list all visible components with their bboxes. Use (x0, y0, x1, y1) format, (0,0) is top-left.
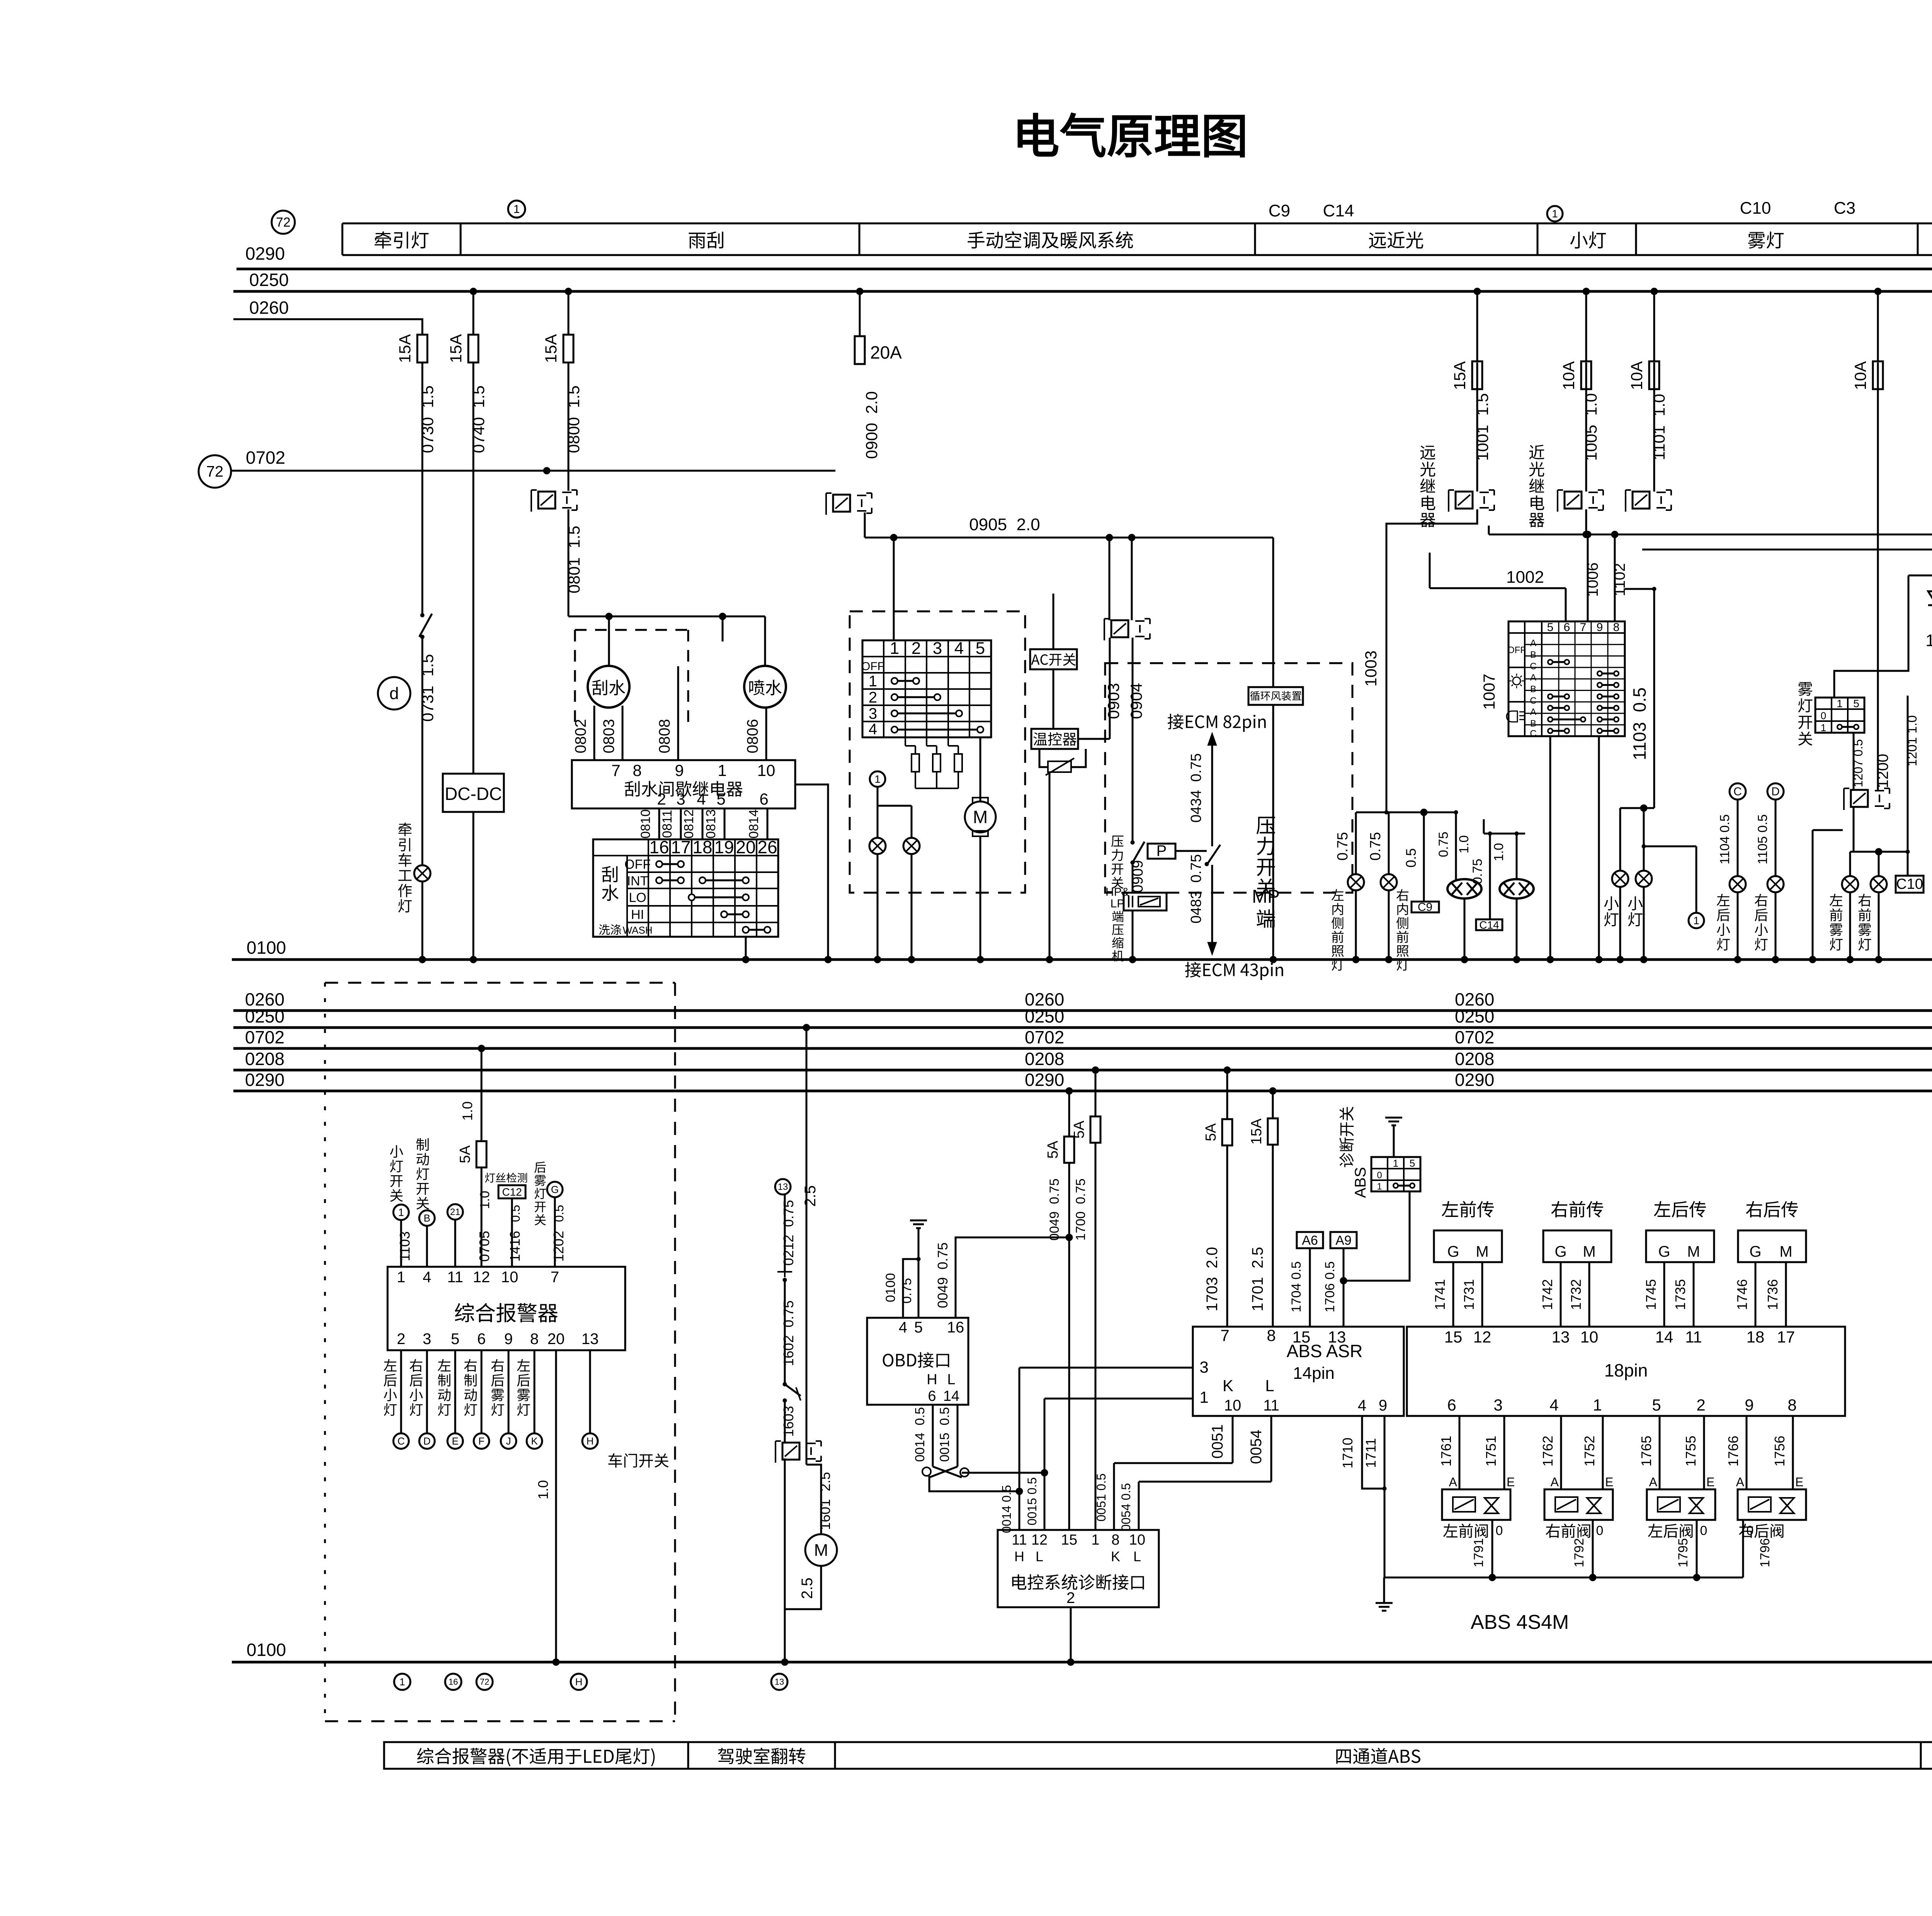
svg-text:1: 1 (1199, 1388, 1208, 1406)
svg-text:J: J (506, 1435, 511, 1447)
svg-text:0100: 0100 (247, 1640, 286, 1660)
svg-text:15A: 15A (447, 334, 465, 363)
svg-text:15A: 15A (396, 334, 414, 363)
svg-text:1765: 1765 (1638, 1436, 1654, 1467)
svg-text:2.5: 2.5 (802, 1185, 819, 1207)
svg-text:0051: 0051 (1209, 1424, 1226, 1459)
svg-text:5A: 5A (1203, 1123, 1219, 1141)
svg-text:1752: 1752 (1582, 1436, 1597, 1467)
svg-text:8: 8 (633, 761, 641, 779)
svg-text:10: 10 (501, 1269, 519, 1286)
svg-text:14: 14 (1655, 1328, 1673, 1346)
svg-text:9: 9 (504, 1331, 513, 1348)
svg-text:C: C (1733, 785, 1742, 798)
svg-text:20: 20 (548, 1331, 565, 1348)
svg-text:0: 0 (1496, 1523, 1503, 1538)
svg-text:11: 11 (1012, 1532, 1027, 1548)
svg-text:2: 2 (1066, 1589, 1075, 1606)
svg-text:4: 4 (697, 790, 706, 808)
svg-text:9: 9 (675, 761, 684, 779)
svg-text:1792: 1792 (1572, 1538, 1587, 1567)
svg-text:0290: 0290 (245, 243, 285, 264)
svg-text:12: 12 (473, 1269, 490, 1286)
svg-text:0909: 0909 (1130, 860, 1146, 893)
svg-text:10: 10 (1580, 1328, 1599, 1346)
svg-text:1751: 1751 (1483, 1436, 1499, 1467)
svg-text:M: M (1687, 1243, 1700, 1260)
svg-text:OFF: OFF (624, 857, 651, 872)
svg-text:0.5: 0.5 (509, 1205, 522, 1222)
svg-text:0208: 0208 (1455, 1049, 1494, 1069)
svg-text:8: 8 (1613, 621, 1620, 634)
svg-text:M: M (1779, 1243, 1792, 1260)
svg-text:3: 3 (676, 790, 685, 808)
svg-text:10A: 10A (1560, 361, 1578, 390)
svg-text:0049 0.75: 0049 0.75 (935, 1242, 951, 1308)
svg-text:1: 1 (1393, 1157, 1398, 1169)
svg-text:D: D (423, 1435, 431, 1447)
svg-text:14pin: 14pin (1293, 1364, 1335, 1383)
svg-text:OFF: OFF (1507, 645, 1526, 655)
svg-text:5: 5 (976, 639, 985, 658)
svg-text:1201 1.0: 1201 1.0 (1905, 715, 1920, 766)
svg-text:E: E (1605, 1475, 1613, 1489)
svg-text:13: 13 (582, 1331, 599, 1348)
svg-text:72: 72 (480, 1677, 489, 1687)
svg-text:1.0: 1.0 (1457, 835, 1471, 853)
svg-text:13: 13 (778, 1182, 788, 1192)
svg-text:1207 0.5: 1207 0.5 (1851, 739, 1865, 788)
svg-text:1711: 1711 (1363, 1438, 1379, 1468)
svg-text:1: 1 (1837, 698, 1843, 710)
svg-text:1603: 1603 (781, 1406, 796, 1437)
svg-text:C: C (1530, 661, 1536, 672)
svg-text:D: D (1771, 785, 1780, 798)
svg-text:ABS ASR: ABS ASR (1287, 1341, 1363, 1361)
svg-text:d: d (389, 684, 399, 703)
svg-text:1766: 1766 (1725, 1436, 1741, 1467)
svg-text:10: 10 (1224, 1397, 1242, 1414)
svg-text:0: 0 (1377, 1170, 1382, 1181)
svg-text:H: H (927, 1371, 937, 1388)
svg-text:0.5: 0.5 (1403, 848, 1419, 868)
svg-text:1005 1.0: 1005 1.0 (1582, 393, 1600, 461)
svg-text:5: 5 (716, 790, 725, 808)
svg-text:0.75: 0.75 (1335, 832, 1351, 861)
svg-text:1: 1 (718, 761, 726, 779)
svg-text:4: 4 (869, 721, 877, 738)
svg-text:1001 1.5: 1001 1.5 (1473, 393, 1492, 461)
svg-text:1: 1 (1693, 915, 1699, 927)
svg-text:A: A (1649, 1475, 1658, 1489)
svg-text:0702: 0702 (1025, 1027, 1064, 1047)
svg-text:1002: 1002 (1506, 568, 1544, 587)
svg-text:4: 4 (423, 1269, 431, 1286)
svg-text:0: 0 (1700, 1523, 1708, 1538)
svg-text:ABS 4S4M: ABS 4S4M (1471, 1611, 1569, 1634)
svg-text:18: 18 (1747, 1328, 1765, 1346)
svg-text:12: 12 (1031, 1532, 1048, 1548)
svg-text:C3: C3 (1834, 199, 1855, 218)
svg-text:72: 72 (276, 215, 291, 230)
svg-text:15: 15 (1061, 1532, 1077, 1548)
svg-text:2: 2 (657, 790, 666, 808)
svg-text:C: C (398, 1435, 405, 1447)
svg-text:2: 2 (397, 1331, 405, 1348)
svg-text:0.75: 0.75 (1436, 832, 1451, 857)
svg-text:M: M (1476, 1243, 1488, 1260)
svg-text:4: 4 (954, 639, 964, 658)
svg-text:0705: 0705 (476, 1231, 492, 1262)
svg-text:C9: C9 (1269, 201, 1290, 220)
svg-text:0100: 0100 (883, 1273, 898, 1302)
svg-text:14: 14 (943, 1388, 959, 1404)
svg-text:0: 0 (1821, 710, 1826, 721)
svg-text:0.5: 0.5 (552, 1205, 566, 1222)
svg-text:0.75: 0.75 (900, 1278, 914, 1303)
svg-text:1732: 1732 (1568, 1279, 1584, 1310)
svg-text:1601 2.5: 1601 2.5 (817, 1472, 833, 1530)
svg-text:0905 2.0: 0905 2.0 (969, 515, 1040, 534)
svg-text:LP: LP (1111, 897, 1125, 910)
svg-text:1: 1 (400, 1676, 405, 1688)
svg-text:1006: 1006 (1584, 563, 1601, 597)
svg-text:1: 1 (1552, 208, 1558, 220)
svg-text:0049 0.75: 0049 0.75 (1047, 1179, 1062, 1241)
svg-text:11: 11 (1263, 1397, 1279, 1414)
svg-text:1710: 1710 (1340, 1438, 1355, 1468)
svg-text:1756: 1756 (1772, 1436, 1787, 1467)
svg-text:2: 2 (869, 689, 877, 706)
svg-text:1.0: 1.0 (535, 1480, 551, 1499)
svg-text:L: L (1133, 1548, 1141, 1564)
svg-text:6: 6 (1447, 1396, 1456, 1414)
svg-text:18: 18 (692, 837, 712, 857)
svg-text:1: 1 (869, 673, 877, 690)
svg-text:5A: 5A (457, 1145, 473, 1163)
svg-text:7: 7 (1580, 621, 1587, 634)
svg-text:12: 12 (1473, 1328, 1492, 1346)
svg-text:9: 9 (1597, 621, 1603, 634)
svg-text:4: 4 (1358, 1397, 1366, 1414)
svg-text:C10: C10 (1896, 876, 1923, 892)
svg-text:E: E (1706, 1475, 1714, 1489)
svg-text:0015 0.5: 0015 0.5 (1025, 1477, 1039, 1526)
svg-text:1791: 1791 (1471, 1538, 1486, 1567)
svg-text:9: 9 (1379, 1397, 1387, 1414)
svg-text:72: 72 (206, 463, 224, 480)
svg-text:0290: 0290 (1455, 1070, 1494, 1090)
svg-text:K: K (531, 1435, 538, 1447)
svg-text:2.5: 2.5 (799, 1577, 816, 1599)
svg-text:G: G (1749, 1243, 1761, 1260)
svg-text:P: P (1156, 842, 1167, 859)
svg-text:1.0: 1.0 (1492, 843, 1506, 861)
svg-text:K: K (1111, 1548, 1120, 1564)
svg-text:C: C (1530, 696, 1536, 706)
svg-text:LO: LO (629, 890, 646, 905)
svg-text:B: B (423, 1212, 430, 1224)
svg-text:21: 21 (450, 1207, 461, 1217)
svg-text:0800 1.5: 0800 1.5 (565, 385, 583, 453)
svg-text:15: 15 (1444, 1328, 1463, 1346)
svg-text:1200: 1200 (1874, 754, 1891, 788)
svg-text:16: 16 (947, 1319, 964, 1336)
svg-text:DC-DC: DC-DC (445, 784, 502, 804)
svg-text:10: 10 (757, 761, 776, 779)
svg-text:1: 1 (874, 773, 881, 785)
svg-text:2: 2 (1696, 1396, 1705, 1414)
svg-text:1745: 1745 (1643, 1279, 1659, 1310)
svg-text:0803: 0803 (600, 719, 617, 754)
svg-text:0: 0 (1747, 1523, 1754, 1538)
svg-text:7: 7 (1220, 1326, 1229, 1344)
svg-text:6: 6 (928, 1388, 936, 1404)
svg-text:13: 13 (1552, 1328, 1570, 1346)
svg-text:0802: 0802 (572, 719, 589, 754)
svg-text:MP: MP (1252, 887, 1280, 907)
svg-text:1202: 1202 (551, 1231, 566, 1262)
svg-text:H: H (1014, 1548, 1024, 1564)
svg-text:0250: 0250 (249, 270, 289, 290)
svg-text:0054 0.5: 0054 0.5 (1119, 1483, 1133, 1531)
svg-text:16: 16 (649, 837, 669, 857)
svg-text:1101 1.0: 1101 1.0 (1650, 394, 1668, 460)
svg-text:0054: 0054 (1248, 1430, 1265, 1464)
svg-text:4: 4 (899, 1319, 907, 1336)
svg-text:3: 3 (869, 705, 877, 722)
svg-text:0434 0.75: 0434 0.75 (1188, 753, 1204, 823)
svg-text:C9: C9 (1418, 901, 1432, 914)
svg-text:A9: A9 (1335, 1233, 1352, 1248)
svg-text:7: 7 (551, 1269, 559, 1286)
svg-text:A: A (1530, 707, 1536, 717)
svg-text:0015 0.5: 0015 0.5 (937, 1407, 952, 1462)
svg-text:8: 8 (1267, 1326, 1276, 1344)
svg-text:E: E (1507, 1475, 1515, 1489)
svg-text:C14: C14 (1323, 201, 1354, 220)
svg-text:A: A (1449, 1475, 1458, 1489)
svg-text:1.0: 1.0 (478, 1191, 492, 1209)
svg-text:WASH: WASH (622, 924, 652, 936)
svg-text:0250: 0250 (1025, 1006, 1064, 1026)
svg-text:15A: 15A (542, 334, 560, 363)
svg-text:C12: C12 (502, 1186, 522, 1198)
svg-text:0806: 0806 (744, 719, 761, 754)
svg-text:G: G (1447, 1243, 1459, 1260)
svg-text:5A: 5A (1071, 1120, 1087, 1138)
svg-text:18pin: 18pin (1604, 1360, 1648, 1380)
svg-text:0903: 0903 (1104, 683, 1122, 719)
svg-text:0702: 0702 (245, 1027, 284, 1047)
svg-text:A6: A6 (1302, 1233, 1318, 1248)
svg-text:1762: 1762 (1540, 1436, 1556, 1467)
svg-text:5: 5 (1410, 1157, 1415, 1169)
svg-text:1: 1 (1091, 1532, 1099, 1548)
svg-text:5: 5 (1547, 621, 1554, 634)
svg-text:C: C (1530, 728, 1536, 739)
svg-text:10: 10 (1129, 1532, 1145, 1548)
svg-text:A: A (1530, 672, 1536, 683)
svg-text:6: 6 (759, 790, 768, 808)
svg-text:0814: 0814 (747, 809, 761, 839)
svg-text:17: 17 (671, 837, 690, 857)
svg-text:1003: 1003 (1362, 650, 1380, 686)
svg-text:M: M (973, 807, 988, 827)
svg-text:8: 8 (530, 1331, 539, 1348)
svg-text:L: L (1036, 1548, 1043, 1564)
svg-text:0.75: 0.75 (1470, 859, 1485, 884)
svg-text:3: 3 (423, 1331, 431, 1348)
svg-text:E: E (1795, 1475, 1803, 1489)
svg-text:0812: 0812 (682, 809, 696, 839)
svg-text:1761: 1761 (1438, 1436, 1454, 1467)
svg-text:0702: 0702 (1455, 1027, 1494, 1047)
svg-text:A: A (1551, 1475, 1559, 1489)
svg-text:ABS: ABS (1352, 1167, 1369, 1198)
svg-text:0900 2.0: 0900 2.0 (862, 391, 881, 459)
svg-text:0014 0.5: 0014 0.5 (913, 1407, 927, 1462)
svg-text:17: 17 (1777, 1328, 1795, 1346)
svg-text:HI: HI (631, 907, 644, 922)
svg-text:0810: 0810 (638, 809, 653, 839)
svg-text:1: 1 (397, 1269, 405, 1286)
svg-text:L: L (1265, 1377, 1274, 1395)
svg-text:C10: C10 (1740, 199, 1771, 218)
svg-text:0801 1.5: 0801 1.5 (565, 526, 583, 593)
svg-text:0: 0 (1596, 1523, 1604, 1538)
svg-text:0250: 0250 (245, 1006, 284, 1026)
svg-text:0904: 0904 (1127, 683, 1145, 719)
svg-text:3: 3 (933, 639, 942, 658)
svg-text:E: E (452, 1435, 458, 1447)
svg-text:20A: 20A (870, 342, 902, 362)
svg-text:INT: INT (627, 874, 648, 888)
svg-text:H: H (575, 1676, 583, 1688)
svg-text:1: 1 (398, 1206, 404, 1218)
svg-text:1795: 1795 (1676, 1538, 1690, 1567)
svg-text:20: 20 (736, 837, 755, 857)
svg-text:0250: 0250 (1455, 1006, 1494, 1026)
svg-text:0100: 0100 (247, 938, 286, 958)
svg-text:1742: 1742 (1539, 1279, 1555, 1310)
svg-text:B: B (1530, 650, 1536, 660)
svg-text:8: 8 (1787, 1396, 1796, 1414)
svg-text:C14: C14 (1479, 919, 1499, 931)
svg-text:15A: 15A (1451, 361, 1469, 390)
svg-text:5: 5 (1652, 1396, 1661, 1414)
svg-text:1706 0.5: 1706 0.5 (1323, 1261, 1337, 1312)
svg-text:1009 0.5: 1009 0.5 (1925, 631, 1932, 650)
svg-text:A: A (1736, 1475, 1745, 1489)
svg-text:16: 16 (449, 1677, 458, 1687)
svg-text:0290: 0290 (245, 1070, 284, 1090)
svg-text:M: M (814, 1541, 828, 1560)
svg-text:1731: 1731 (1461, 1279, 1477, 1310)
svg-text:2: 2 (912, 639, 921, 658)
svg-text:8: 8 (1111, 1532, 1119, 1548)
svg-text:0808: 0808 (656, 719, 673, 754)
svg-text:0731 1.5: 0731 1.5 (418, 654, 437, 721)
svg-text:5: 5 (1853, 698, 1859, 710)
svg-text:10A: 10A (1851, 361, 1869, 390)
svg-text:H: H (587, 1435, 594, 1447)
svg-text:0208: 0208 (245, 1049, 284, 1069)
svg-text:K: K (1223, 1377, 1233, 1395)
svg-text:5: 5 (451, 1331, 459, 1348)
svg-text:1704 0.5: 1704 0.5 (1289, 1261, 1304, 1312)
svg-text:1104 0.5: 1104 0.5 (1718, 814, 1732, 864)
svg-text:0702: 0702 (246, 448, 285, 468)
svg-text:0208: 0208 (1025, 1049, 1064, 1069)
svg-text:G: G (1658, 1243, 1670, 1260)
svg-text:1416: 1416 (507, 1231, 523, 1262)
svg-text:1700 0.75: 1700 0.75 (1073, 1179, 1088, 1241)
svg-text:A: A (1530, 638, 1536, 648)
svg-text:0811: 0811 (660, 810, 675, 838)
svg-text:1: 1 (1821, 722, 1826, 733)
svg-text:1703 2.0: 1703 2.0 (1204, 1247, 1221, 1312)
svg-text:0014 0.5: 0014 0.5 (1000, 1485, 1014, 1533)
svg-text:1701 2.5: 1701 2.5 (1249, 1247, 1266, 1312)
svg-text:0.75: 0.75 (1367, 832, 1384, 861)
svg-text:15A: 15A (1248, 1118, 1265, 1145)
svg-text:G: G (1554, 1243, 1566, 1260)
svg-text:6: 6 (1564, 621, 1570, 634)
svg-text:1007: 1007 (1480, 674, 1498, 710)
svg-text:1105 0.5: 1105 0.5 (1755, 814, 1770, 864)
svg-text:1602 0.75: 1602 0.75 (781, 1300, 796, 1366)
svg-text:1.0: 1.0 (459, 1101, 475, 1121)
svg-text:M: M (1583, 1243, 1595, 1260)
svg-text:1103: 1103 (397, 1231, 413, 1261)
svg-text:0740 1.5: 0740 1.5 (469, 385, 488, 453)
svg-text:1: 1 (514, 203, 520, 216)
svg-text:1: 1 (1593, 1396, 1602, 1414)
svg-text:5A: 5A (1045, 1140, 1061, 1159)
svg-text:13: 13 (775, 1677, 784, 1687)
svg-text:4: 4 (1549, 1396, 1558, 1414)
svg-text:1: 1 (890, 639, 899, 658)
svg-text:5: 5 (914, 1319, 923, 1336)
svg-text:1746: 1746 (1734, 1279, 1750, 1310)
svg-text:1796: 1796 (1758, 1538, 1772, 1567)
svg-text:0813: 0813 (704, 809, 718, 839)
svg-text:10A: 10A (1628, 361, 1646, 390)
svg-text:0730 1.5: 0730 1.5 (418, 385, 437, 453)
svg-text:0260: 0260 (249, 298, 289, 318)
svg-text:3: 3 (1199, 1358, 1208, 1376)
svg-text:1755: 1755 (1683, 1436, 1699, 1467)
svg-text:0212 0.75: 0212 0.75 (781, 1200, 796, 1266)
svg-text:6: 6 (477, 1331, 486, 1348)
svg-text:B: B (1530, 684, 1536, 694)
svg-text:B: B (1530, 718, 1536, 729)
svg-text:0483 0.75: 0483 0.75 (1188, 854, 1204, 924)
svg-text:1735: 1735 (1672, 1279, 1688, 1310)
svg-text:OFF: OFF (861, 660, 884, 673)
svg-text:11: 11 (447, 1269, 463, 1286)
svg-text:F: F (478, 1435, 485, 1447)
svg-text:1102: 1102 (1611, 563, 1628, 596)
svg-text:1: 1 (1377, 1181, 1382, 1192)
svg-text:L: L (947, 1371, 955, 1388)
svg-text:26: 26 (757, 837, 777, 857)
svg-text:19: 19 (714, 837, 734, 857)
svg-text:1736: 1736 (1765, 1279, 1781, 1310)
svg-text:9: 9 (1745, 1396, 1753, 1414)
svg-text:7: 7 (611, 761, 620, 779)
